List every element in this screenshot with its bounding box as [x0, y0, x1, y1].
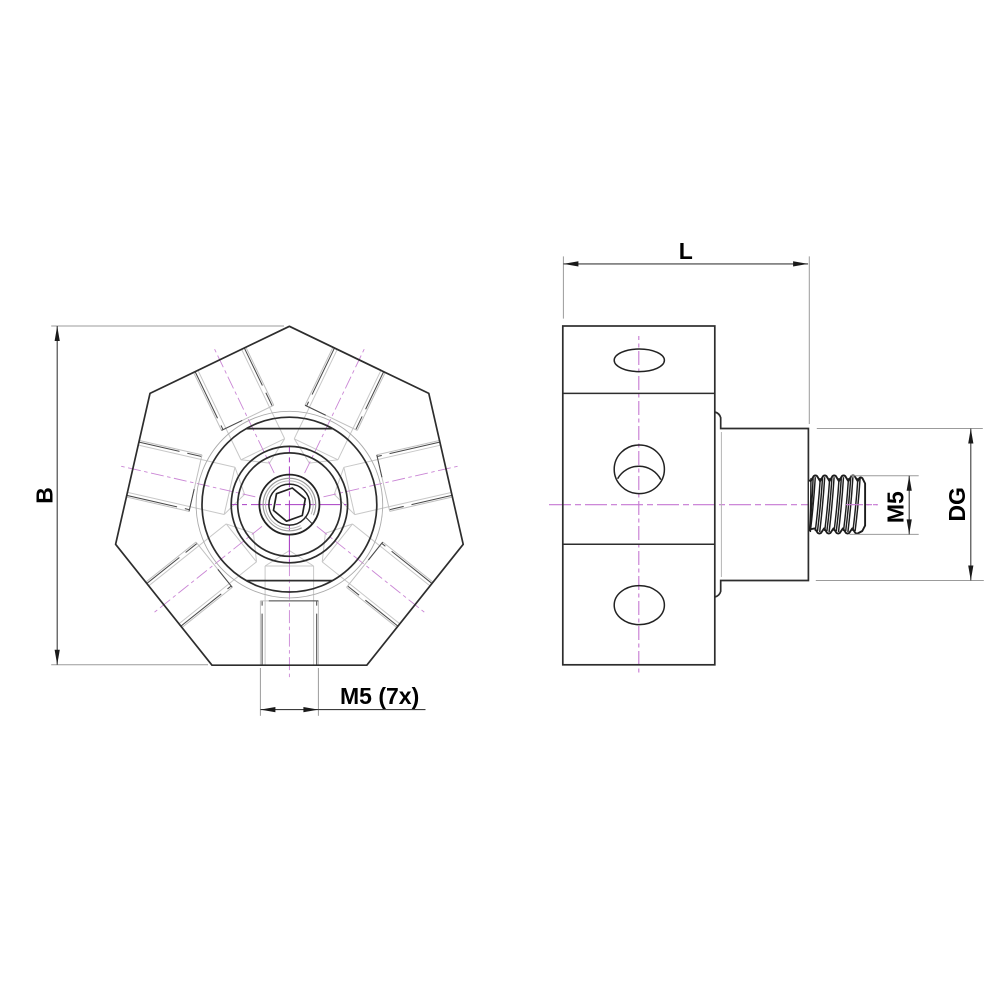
svg-text:B: B [32, 487, 58, 504]
svg-text:L: L [679, 238, 693, 264]
svg-text:DG: DG [944, 487, 970, 522]
svg-text:M5: M5 [882, 491, 908, 523]
svg-text:M5 (7x): M5 (7x) [340, 683, 419, 709]
